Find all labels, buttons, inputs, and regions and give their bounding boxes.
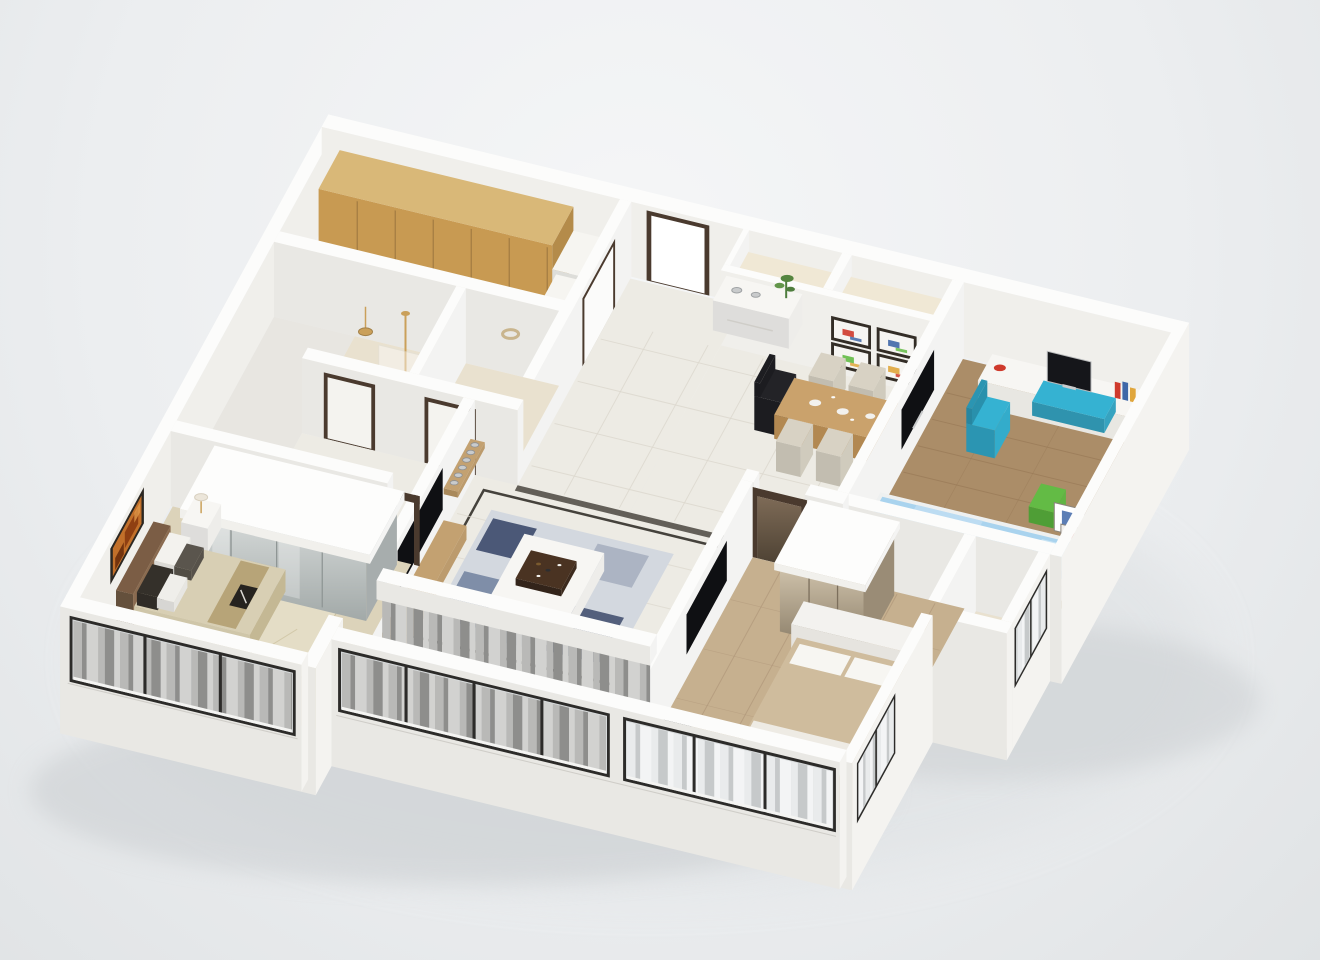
master-bay-window-curtain-pleat	[161, 642, 167, 701]
master-bay-window-curtain-pleat	[222, 657, 227, 716]
kitchen-cabinet-seam	[395, 210, 396, 262]
master-bay-window-curtain-pleat	[167, 643, 176, 703]
wardrobe-seam-3	[322, 550, 323, 607]
dining-dish-2	[837, 408, 849, 415]
bed2-front-window-curtain-pleat	[714, 743, 720, 800]
bed2-front-window-curtain-pleat	[674, 733, 683, 791]
master-bay-window-curtain-pleat	[207, 653, 213, 712]
facade-master-front-side	[301, 653, 308, 792]
decor-sphere	[467, 450, 475, 454]
silver-vase-2	[751, 292, 760, 297]
master-bay-window-curtain-pleat	[114, 631, 120, 690]
living-balcony-window-curtain-pleat	[569, 708, 575, 765]
bed2-front-window-curtain-pleat	[698, 739, 705, 797]
apartment-3d-floorplan	[0, 0, 1320, 960]
living-balcony-window-curtain-pleat	[560, 705, 570, 763]
bed2-front-window-curtain-pleat	[687, 736, 698, 795]
sideroom-window-curtain-pleat	[1041, 576, 1045, 636]
master-bay-window-curtain-pleat	[254, 664, 260, 723]
tray-bottle-1	[536, 563, 541, 566]
bed2-front-window-curtain-pleat	[780, 759, 791, 818]
dining-glass-1	[831, 396, 835, 398]
sideroom-window-curtain-pleat	[1039, 584, 1041, 640]
master-bay-window-curtain-pleat	[260, 666, 269, 726]
bed2-front-window-curtain-pleat	[682, 735, 687, 792]
office-chair-back-front	[754, 382, 760, 397]
tray-bottle-2	[546, 569, 551, 572]
living-balcony-window-curtain-pleat	[429, 674, 435, 731]
living-balcony-window-curtain-pleat	[373, 660, 383, 718]
render-canvas	[30, 115, 1260, 891]
dining-dish-3	[865, 413, 875, 419]
bed2-front-window-curtain-pleat	[813, 767, 822, 825]
living-balcony-window-mullion	[405, 666, 408, 727]
entry-door-open	[651, 216, 704, 294]
bed2-side-window-curtain-pleat	[881, 713, 887, 776]
living-balcony-window-curtain-pleat	[490, 689, 495, 746]
bed2-side-window-mullion	[875, 729, 877, 788]
master-bay-window-curtain-pleat	[105, 628, 115, 688]
dining-dish-1	[809, 400, 821, 407]
living-balcony-window-curtain-pleat	[506, 693, 513, 751]
tray-cup-2	[557, 564, 561, 566]
living-balcony-window-curtain-pleat	[482, 687, 491, 745]
master-bay-window-curtain-pleat	[238, 660, 245, 720]
living-balcony-window-curtain-pleat	[383, 663, 389, 720]
master-bay-window-curtain-pleat	[191, 649, 198, 709]
bed2-front-window-curtain-pleat	[636, 724, 641, 781]
bed2-front-window-curtain-pleat	[705, 741, 715, 799]
facade-south-front-side	[840, 750, 847, 889]
master-doorjamb-right	[414, 495, 420, 566]
master-bay-window-curtain-pleat	[151, 640, 161, 700]
master-bay-window-curtain-pleat	[73, 621, 82, 681]
living-balcony-window-curtain-pleat	[575, 709, 584, 767]
lamp-shade	[195, 494, 208, 501]
living-balcony-window-curtain-pleat	[413, 670, 420, 728]
bed2-side-window-curtain-pleat	[887, 709, 889, 765]
wall-bath-front-side	[518, 400, 524, 486]
bed2-front-window-curtain-pleat	[807, 765, 813, 822]
sideroom-window-mullion	[1030, 599, 1032, 658]
bed2-side-window-curtain-pleat	[859, 756, 863, 816]
bed2-front-window-curtain-pleat	[658, 729, 668, 787]
bed2-front-window-curtain-pleat	[798, 763, 808, 821]
kitchen-cabinet-seam	[471, 229, 472, 281]
living-balcony-window-curtain-pleat	[460, 681, 467, 739]
master-bay-window-mullion	[219, 654, 222, 717]
living-balcony-window-curtain-pleat	[397, 666, 402, 723]
decor-sphere	[454, 473, 462, 477]
dining-glass-2	[850, 419, 854, 421]
master-bay-window-curtain-pleat	[180, 646, 191, 707]
master-bay-window-curtain-pleat	[284, 672, 291, 732]
bed2-front-window-curtain-pleat	[775, 758, 780, 815]
bath1-door	[328, 377, 372, 449]
master-bay-window-curtain-pleat	[268, 668, 273, 727]
kitchen-cabinet-seam	[357, 201, 358, 253]
kids-red-plate	[994, 365, 1006, 372]
living-balcony-window-curtain-pleat	[355, 656, 366, 715]
living-balcony-window-curtain-pleat	[583, 711, 588, 768]
sideroom-window-curtain-pleat	[1033, 588, 1039, 651]
bed2-side-window-curtain-pleat	[866, 744, 870, 804]
bed2-front-window-curtain-pleat	[791, 762, 798, 820]
decor-sphere	[450, 481, 458, 485]
living-balcony-window-curtain-pleat	[444, 677, 449, 734]
bed2-side-window-curtain-pleat	[863, 752, 865, 808]
kitchen-cabinet-seam	[509, 238, 510, 290]
living-balcony-window-curtain-pleat	[513, 694, 523, 752]
bed2-side-window-curtain-pleat	[870, 738, 873, 795]
master-bay-window-curtain-pleat	[273, 669, 284, 730]
kitchen-cabinet-seam	[433, 220, 434, 272]
living-balcony-window-curtain-pleat	[553, 704, 560, 762]
living-balcony-window-mullion	[473, 682, 476, 743]
master-bay-window-curtain-pleat	[198, 651, 208, 711]
master-bay-window-mullion	[143, 636, 146, 699]
bath-pendant-lamp	[359, 328, 373, 336]
master-bay-window-curtain-pleat	[244, 662, 254, 722]
decor-sphere	[463, 458, 471, 462]
living-balcony-window-curtain-pleat	[435, 675, 444, 733]
sideroom-window-curtain-pleat	[1022, 614, 1025, 671]
living-balcony-window-curtain-pleat	[389, 664, 398, 722]
living-balcony-window-curtain-pleat	[528, 698, 537, 756]
bed2-front-window-mullion	[693, 736, 696, 797]
living-balcony-window-curtain-pleat	[367, 659, 374, 717]
decor-sphere	[458, 465, 466, 469]
bed2-front-window-curtain-pleat	[745, 750, 752, 808]
kids-book-1	[1115, 382, 1121, 399]
bed2-front-window-curtain-pleat	[668, 732, 674, 789]
master-bay-window-curtain-pleat	[129, 634, 134, 693]
plant-leaves-1	[781, 275, 794, 282]
bed2-front-window-curtain-pleat	[720, 744, 729, 802]
bed2-front-window-curtain-pleat	[640, 725, 651, 784]
living-balcony-window-curtain-pleat	[342, 653, 351, 711]
bed2-side-window-curtain-pleat	[889, 701, 893, 761]
master-bay-window-curtain-pleat	[226, 658, 237, 719]
bed2-front-window-curtain-pleat	[652, 728, 659, 786]
living-balcony-window-curtain-pleat	[588, 712, 599, 771]
bed2-front-window-curtain-pleat	[729, 746, 734, 803]
bed2-side-window-curtain-pleat	[878, 724, 881, 782]
living-balcony-window-curtain-pleat	[522, 696, 528, 753]
dining-chair-3-front	[776, 441, 801, 477]
sideroom-window-curtain-pleat	[1016, 627, 1017, 681]
master-bay-window-curtain-pleat	[175, 645, 180, 704]
living-balcony-window-curtain-pleat	[448, 679, 459, 738]
plant-leaves-3	[786, 287, 795, 292]
bed2-front-window-curtain-pleat	[627, 722, 636, 780]
bed2-front-window-curtain-pleat	[767, 756, 776, 814]
wall-sideroom-front-side	[1007, 623, 1013, 761]
decor-sphere	[471, 443, 479, 447]
master-bay-window-curtain-pleat	[291, 673, 292, 731]
silver-vase-1	[732, 287, 742, 293]
living-balcony-window-curtain-pleat	[420, 672, 430, 730]
living-balcony-window-curtain-pleat	[351, 655, 356, 712]
master-bay-window-curtain-pleat	[82, 623, 87, 682]
bed2-front-window-curtain-pleat	[822, 769, 827, 826]
master-bay-window-curtain-pleat	[120, 632, 129, 692]
bed2-front-window-curtain-pleat	[826, 770, 832, 827]
shower-head	[401, 311, 410, 316]
tray-cup-1	[536, 575, 540, 577]
living-balcony-window-mullion	[540, 699, 543, 760]
dining-chair-4-front	[816, 451, 841, 487]
bed2-front-window-curtain-pleat	[733, 748, 744, 807]
kids-chair-back-front	[966, 408, 972, 425]
bed2-front-window-curtain-pleat	[751, 752, 761, 810]
plant-leaves-2	[775, 283, 785, 289]
master-bay-window-curtain-pleat	[98, 627, 105, 687]
living-balcony-window-curtain-pleat	[599, 715, 606, 773]
living-balcony-window-curtain-pleat	[476, 685, 482, 742]
kids-book-2	[1122, 382, 1128, 401]
sideroom-window-curtain-pleat	[1017, 619, 1021, 679]
bed2-front-window-mullion	[764, 753, 767, 814]
facade-kids-east-front	[1050, 554, 1061, 684]
master-bay-window-curtain-pleat	[133, 635, 144, 696]
master-bay-window-curtain-pleat	[87, 624, 98, 685]
living-balcony-window-curtain-pleat	[495, 690, 506, 749]
sideroom-window-curtain-pleat	[1025, 605, 1030, 666]
